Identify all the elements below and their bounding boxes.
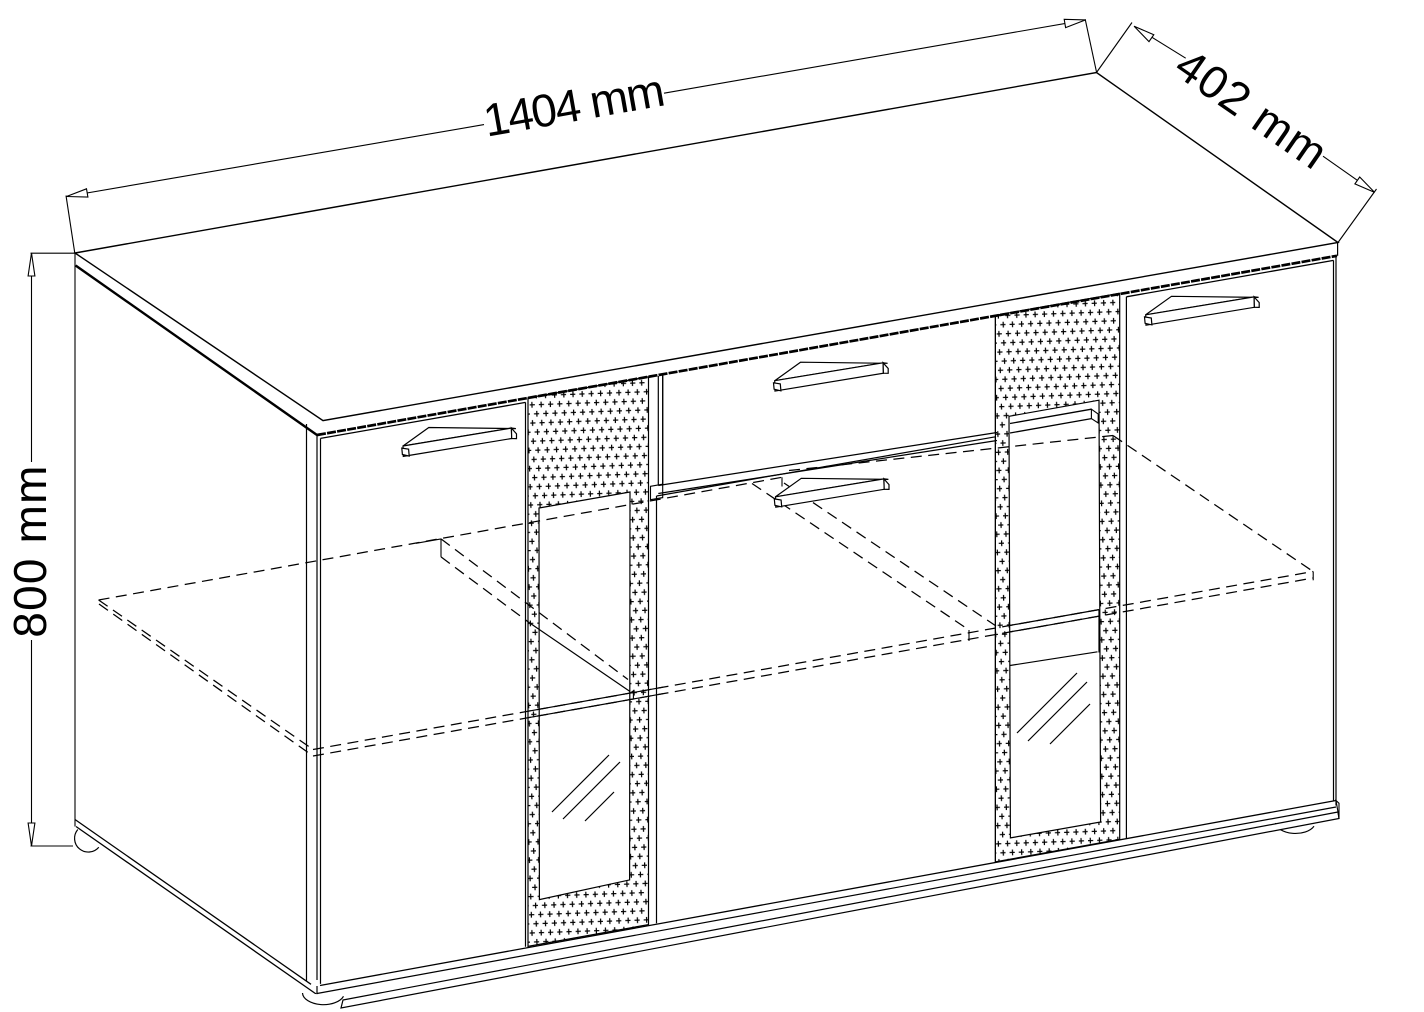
svg-text:800 mm: 800 mm	[4, 464, 56, 637]
